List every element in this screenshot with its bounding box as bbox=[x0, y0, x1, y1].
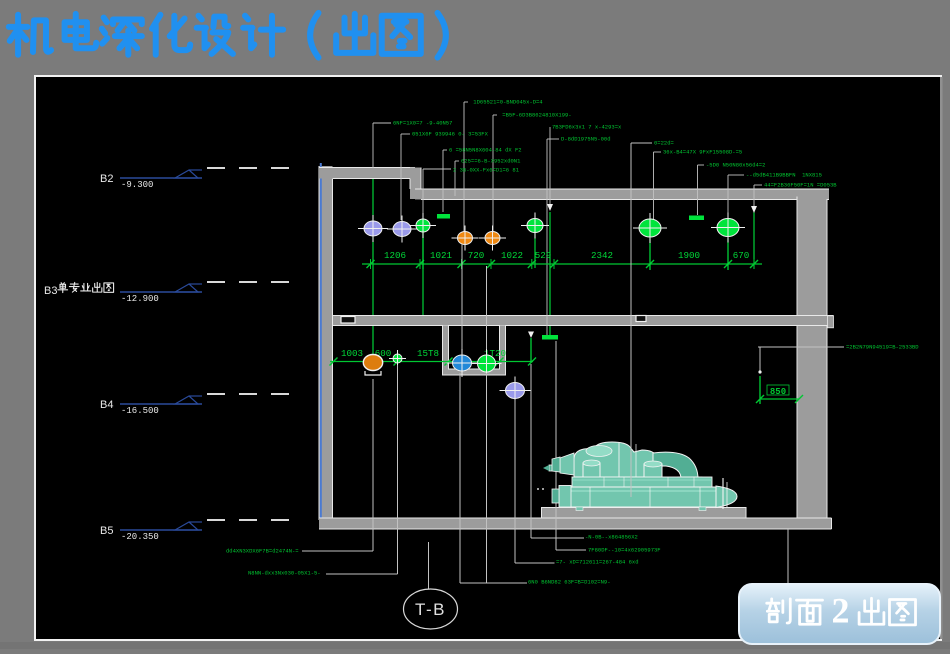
svg-text:44=F2B36F50F=1N =D053B: 44=F2B36F50F=1N =D053B bbox=[764, 181, 837, 188]
svg-text:0=22d=: 0=22d= bbox=[654, 139, 674, 146]
svg-text:850: 850 bbox=[770, 387, 786, 397]
svg-text:-16.500: -16.500 bbox=[121, 406, 159, 416]
svg-text:B3: B3 bbox=[44, 285, 57, 297]
svg-text:1021: 1021 bbox=[430, 250, 453, 261]
svg-text:-20.350: -20.350 bbox=[121, 532, 159, 542]
svg-text:-N-0B--x864856X2: -N-0B--x864856X2 bbox=[585, 533, 641, 540]
svg-text:7F80DF--10=4x62905973F: 7F80DF--10=4x62905973F bbox=[588, 546, 661, 553]
svg-text:-12.900: -12.900 bbox=[121, 294, 159, 304]
svg-text:=2B2N79N94519=B-2533BD: =2B2N79N94519=B-2533BD bbox=[846, 343, 919, 350]
svg-text:B2: B2 bbox=[100, 173, 113, 185]
svg-text:2342: 2342 bbox=[591, 250, 613, 261]
svg-text:-5D0 N50N80x56d4=2: -5D0 N50N80x56d4=2 bbox=[706, 161, 765, 168]
svg-text:D-8dD1975N5-00d: D-8dD1975N5-00d bbox=[561, 135, 611, 142]
svg-text:B5: B5 bbox=[100, 525, 113, 537]
svg-text:15T8: 15T8 bbox=[417, 348, 439, 359]
svg-text:1D65521=0-BND045x-D=4: 1D65521=0-BND045x-D=4 bbox=[470, 98, 543, 105]
svg-text:529: 529 bbox=[535, 250, 552, 261]
svg-text:625==6-B-X952xd0N1: 625==6-B-X952xd0N1 bbox=[461, 157, 521, 164]
svg-text:=7- xD=712611=267-484 6xd: =7- xD=712611=267-484 6xd bbox=[556, 558, 639, 565]
svg-text:N8NN-dxx3Nx030-05X1-5-: N8NN-dxx3Nx030-05X1-5- bbox=[248, 569, 321, 576]
svg-text:=B5F-6D3B8624810X199-: =B5F-6D3B8624810X199- bbox=[499, 111, 572, 118]
svg-text:051X6F 939946 0- 3=53FX: 051X6F 939946 0- 3=53FX bbox=[412, 130, 489, 137]
svg-text:1003: 1003 bbox=[341, 348, 363, 359]
svg-text:720: 720 bbox=[468, 250, 485, 261]
svg-text:36x-B4=47X 9FxF15508D-=5: 36x-B4=47X 9FxF15508D-=5 bbox=[663, 148, 742, 155]
svg-text:T-B: T-B bbox=[415, 600, 446, 619]
svg-text:6 =58N5N8X604-84 dX F2: 6 =58N5N8X604-84 dX F2 bbox=[449, 146, 522, 153]
svg-text:2 3B-0XX-Fx6=D1=6 81: 2 3B-0XX-Fx6=D1=6 81 bbox=[453, 166, 520, 173]
svg-text:dd4XN3XDX6F7B=d2474N-=: dd4XN3XDX6F7B=d2474N-= bbox=[226, 547, 299, 554]
svg-text:B4: B4 bbox=[100, 399, 113, 411]
svg-text:1206: 1206 bbox=[384, 250, 406, 261]
svg-text:1022: 1022 bbox=[501, 250, 523, 261]
svg-text:670: 670 bbox=[733, 250, 750, 261]
svg-text:6NF=1X0=7 -9-40N57: 6NF=1X0=7 -9-40N57 bbox=[393, 119, 452, 126]
svg-text:2: 2 bbox=[832, 590, 850, 630]
svg-text:1900: 1900 bbox=[678, 250, 700, 261]
svg-text:7B3FD6x3x1 7 x-4293=x: 7B3FD6x3x1 7 x-4293=x bbox=[552, 123, 622, 130]
svg-text:-9.300: -9.300 bbox=[121, 180, 153, 190]
svg-text:6N0 B6ND82 63F=B=D102=N9-: 6N0 B6ND82 63F=B=D102=N9- bbox=[528, 578, 611, 585]
svg-text:--d5dB411B9BBFN 1NX815: --d5dB411B9BBFN 1NX815 bbox=[746, 171, 822, 178]
